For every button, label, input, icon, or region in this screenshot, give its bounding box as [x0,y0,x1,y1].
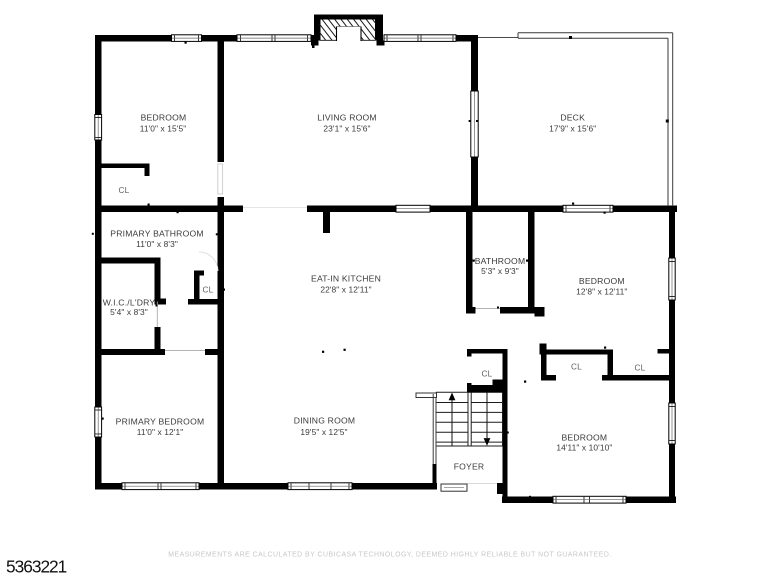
svg-text:BEDROOM: BEDROOM [141,113,187,123]
svg-text:17'9" x 15'6": 17'9" x 15'6" [549,124,596,134]
svg-text:MEASUREMENTS ARE CALCULATED BY: MEASUREMENTS ARE CALCULATED BY CUBICASA … [168,552,611,559]
svg-text:14'11" x 10'10": 14'11" x 10'10" [556,442,612,452]
svg-text:BATHROOM: BATHROOM [475,256,526,266]
svg-text:PRIMARY BEDROOM: PRIMARY BEDROOM [116,417,205,427]
svg-text:CL: CL [202,286,213,295]
svg-text:CL: CL [118,186,129,195]
svg-text:12'8" x 12'11": 12'8" x 12'11" [576,286,627,296]
svg-text:CL: CL [481,370,492,379]
svg-text:DECK: DECK [560,113,585,123]
svg-text:LIVING ROOM: LIVING ROOM [317,113,377,123]
svg-text:BEDROOM: BEDROOM [579,276,625,286]
svg-text:CL: CL [571,363,582,372]
svg-text:11'0" x 12'1": 11'0" x 12'1" [137,427,184,437]
svg-text:5363221: 5363221 [6,557,67,576]
svg-text:DINING ROOM: DINING ROOM [294,416,355,426]
svg-text:11'0" x 8'3": 11'0" x 8'3" [136,239,178,249]
svg-text:CL: CL [634,364,645,373]
svg-text:22'8" x 12'11": 22'8" x 12'11" [320,285,371,295]
svg-text:5'4" x 8'3": 5'4" x 8'3" [110,307,148,317]
svg-text:FOYER: FOYER [454,462,485,472]
svg-text:BEDROOM: BEDROOM [561,432,607,442]
svg-text:PRIMARY BATHROOM: PRIMARY BATHROOM [110,229,203,239]
svg-text:23'1" x 15'6": 23'1" x 15'6" [323,124,370,134]
svg-text:11'0" x 15'5": 11'0" x 15'5" [140,124,187,134]
svg-text:W.I.C./L'DRY: W.I.C./L'DRY [103,297,156,307]
svg-text:19'5" x 12'5": 19'5" x 12'5" [300,427,347,437]
svg-text:5'3" x 9'3": 5'3" x 9'3" [481,266,519,276]
svg-text:EAT-IN KITCHEN: EAT-IN KITCHEN [311,273,381,283]
